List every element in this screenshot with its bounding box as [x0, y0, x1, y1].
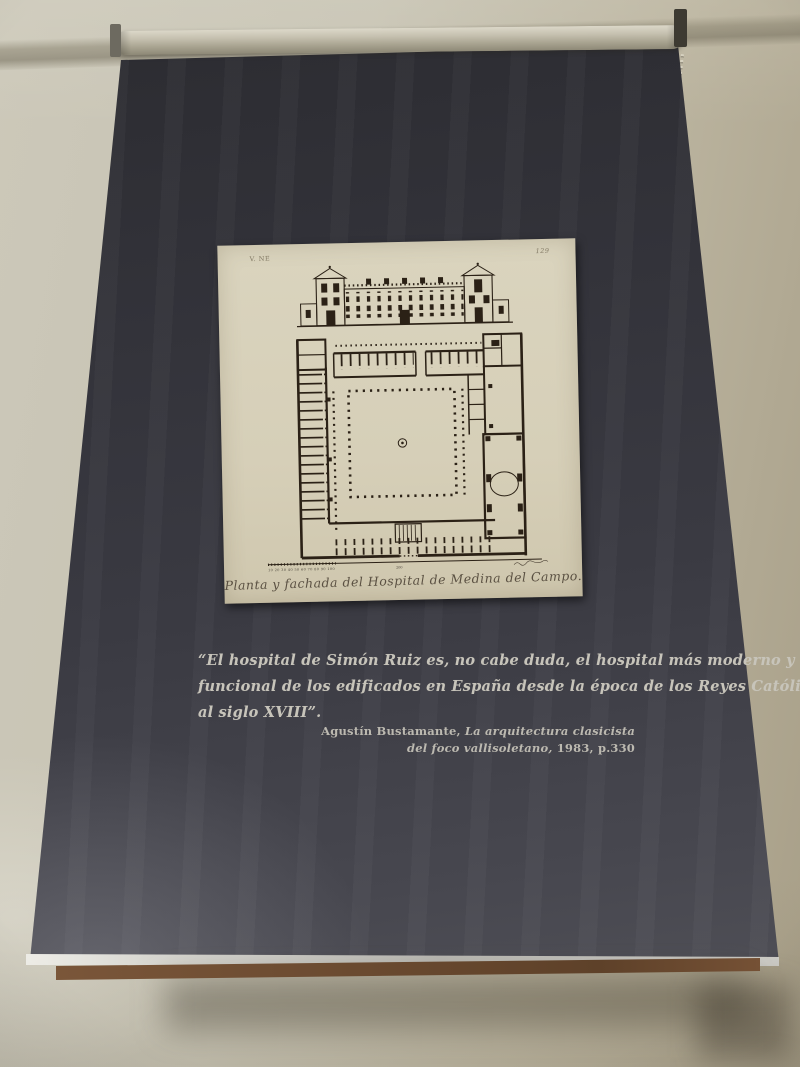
attribution-author: Agustín Bustamante, [321, 724, 465, 738]
quote-attribution: Agustín Bustamante, La arquitectura clas… [300, 723, 635, 757]
scale-numbers-left: 10 20 30 40 50 60 70 80 90 100 [268, 567, 335, 572]
roller-bracket-left [110, 24, 121, 57]
north-colonnade-dots [335, 343, 481, 346]
attribution-work-line2: del foco vallisoletano, [407, 741, 553, 755]
engraver-signature [514, 560, 548, 565]
chapel-block [483, 433, 525, 538]
statue-niche [474, 279, 482, 292]
quote-line-1: “El hospital de Simón Ruiz es, no cabe d… [198, 648, 678, 674]
right-pavilion-pediment [462, 265, 494, 276]
floor-plan [297, 333, 526, 560]
attribution-line-2: del foco vallisoletano, 1983, p.330 [300, 740, 635, 757]
scale-number-middle: 200 [396, 565, 403, 569]
attribution-detail: 1983, p.330 [553, 741, 635, 755]
engraving-print: V. NE 129 [217, 238, 582, 603]
attribution-work-line1: La arquitectura clasicista [465, 724, 635, 738]
quote-block: “El hospital de Simón Ruiz es, no cabe d… [198, 648, 678, 726]
upper-window-row [345, 290, 463, 302]
banner-cast-shadow-right [698, 984, 790, 1058]
facade-elevation [296, 262, 513, 327]
banner-cast-shadow [165, 974, 750, 1030]
chapel-dome [490, 472, 518, 497]
west-walk-dots [333, 391, 336, 533]
north-ward-partitions [336, 353, 414, 370]
west-wing-cells [299, 372, 329, 523]
attribution-line-1: Agustín Bustamante, La arquitectura clas… [300, 723, 635, 740]
east-walk-dots [462, 389, 464, 495]
roller-bracket-right [674, 9, 687, 47]
left-pavilion-pediment [314, 268, 346, 279]
museum-photo-scene: V. NE 129 [0, 0, 800, 1067]
central-door [400, 310, 410, 324]
quote-line-2: funcional de los edificados en España de… [198, 674, 678, 700]
south-range-partitions [333, 536, 491, 555]
engraving-plate: 10 20 30 40 50 60 70 80 90 100 200 [217, 238, 582, 603]
